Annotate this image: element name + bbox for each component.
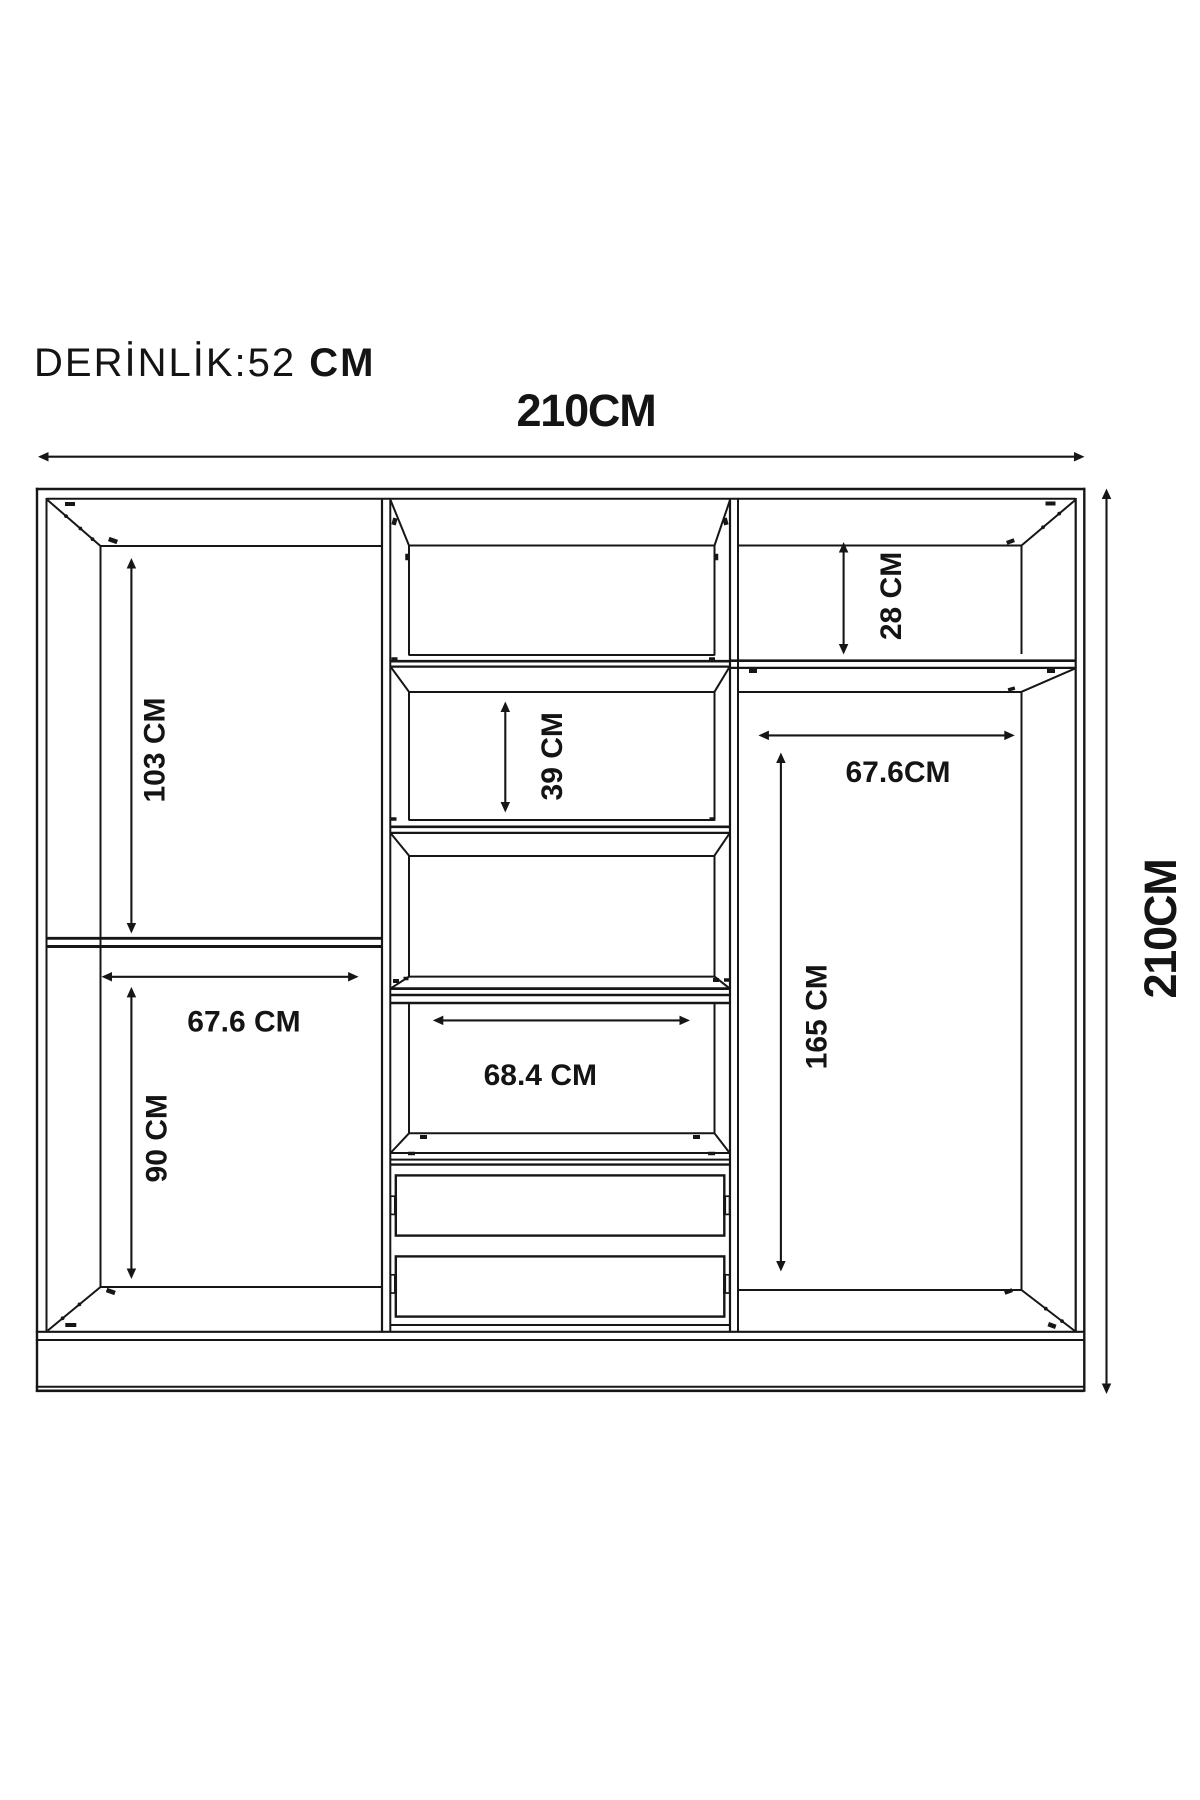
svg-text:103 CM: 103 CM bbox=[139, 697, 172, 802]
svg-text:90 CM: 90 CM bbox=[140, 1094, 173, 1182]
svg-text:165 CM: 165 CM bbox=[801, 964, 834, 1069]
svg-text:67.6CM: 67.6CM bbox=[845, 756, 950, 789]
svg-text:210CM: 210CM bbox=[1135, 859, 1186, 998]
svg-text:28 CM: 28 CM bbox=[875, 552, 908, 640]
svg-text:DERİNLİK:52 CM: DERİNLİK:52 CM bbox=[34, 340, 375, 385]
svg-text:68.4 CM: 68.4 CM bbox=[484, 1059, 597, 1092]
svg-text:67.6 CM: 67.6 CM bbox=[187, 1006, 300, 1039]
svg-text:210CM: 210CM bbox=[516, 385, 655, 436]
svg-text:39 CM: 39 CM bbox=[536, 712, 569, 800]
